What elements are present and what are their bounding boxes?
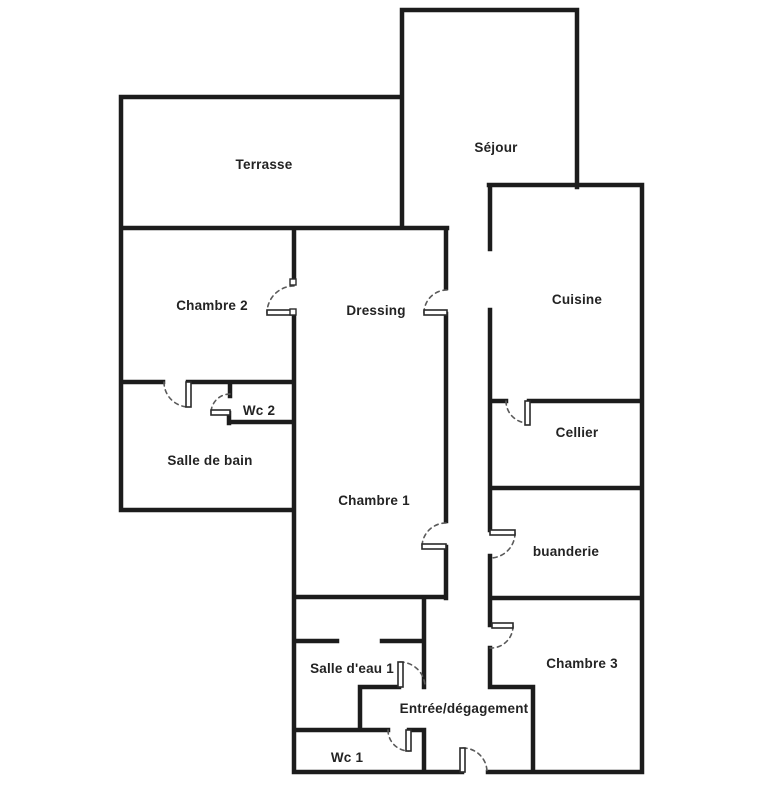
door-leaf-salle-de-bain	[186, 382, 191, 407]
door-leaf-wc2	[211, 410, 230, 415]
door-leaf-dressing	[424, 310, 447, 315]
door-leaf-salle-deau1	[398, 662, 403, 687]
room-label-cuisine: Cuisine	[552, 292, 602, 307]
door-leaf-wc1	[406, 730, 411, 751]
door-leaf-cellier	[525, 401, 530, 425]
room-cellier	[492, 403, 639, 486]
room-label-salle-de-bain: Salle de bain	[167, 453, 252, 468]
room-label-wc-2: Wc 2	[243, 403, 275, 418]
floor-plan-canvas: Terrasse Séjour Chambre 2 Dressing Cuisi…	[0, 0, 778, 800]
door-hinge-top	[290, 279, 296, 285]
room-label-chambre-3: Chambre 3	[546, 656, 618, 671]
room-label-chambre-2: Chambre 2	[176, 298, 248, 313]
door-leaf-entrance	[460, 748, 465, 772]
room-label-dressing: Dressing	[346, 303, 405, 318]
room-label-buanderie: buanderie	[533, 544, 600, 559]
door-leaf-chambre3	[492, 623, 513, 628]
door-leaf-buanderie	[490, 530, 515, 535]
room-chambre-1	[296, 384, 444, 595]
room-buanderie	[492, 490, 639, 596]
room-label-sejour: Séjour	[474, 140, 518, 155]
room-label-entree: Entrée/dégagement	[400, 701, 529, 716]
room-label-wc-1: Wc 1	[331, 750, 364, 765]
room-chambre-3	[492, 600, 639, 685]
room-entree	[426, 599, 488, 770]
door-leaf-chambre1	[422, 544, 446, 549]
door-hinge-bottom	[290, 309, 296, 315]
room-label-salle-deau-1: Salle d'eau 1	[310, 661, 394, 676]
floor-plan-page: Terrasse Séjour Chambre 2 Dressing Cuisi…	[0, 0, 778, 800]
room-label-terrasse: Terrasse	[236, 157, 293, 172]
room-label-cellier: Cellier	[556, 425, 599, 440]
room-label-chambre-1: Chambre 1	[338, 493, 410, 508]
